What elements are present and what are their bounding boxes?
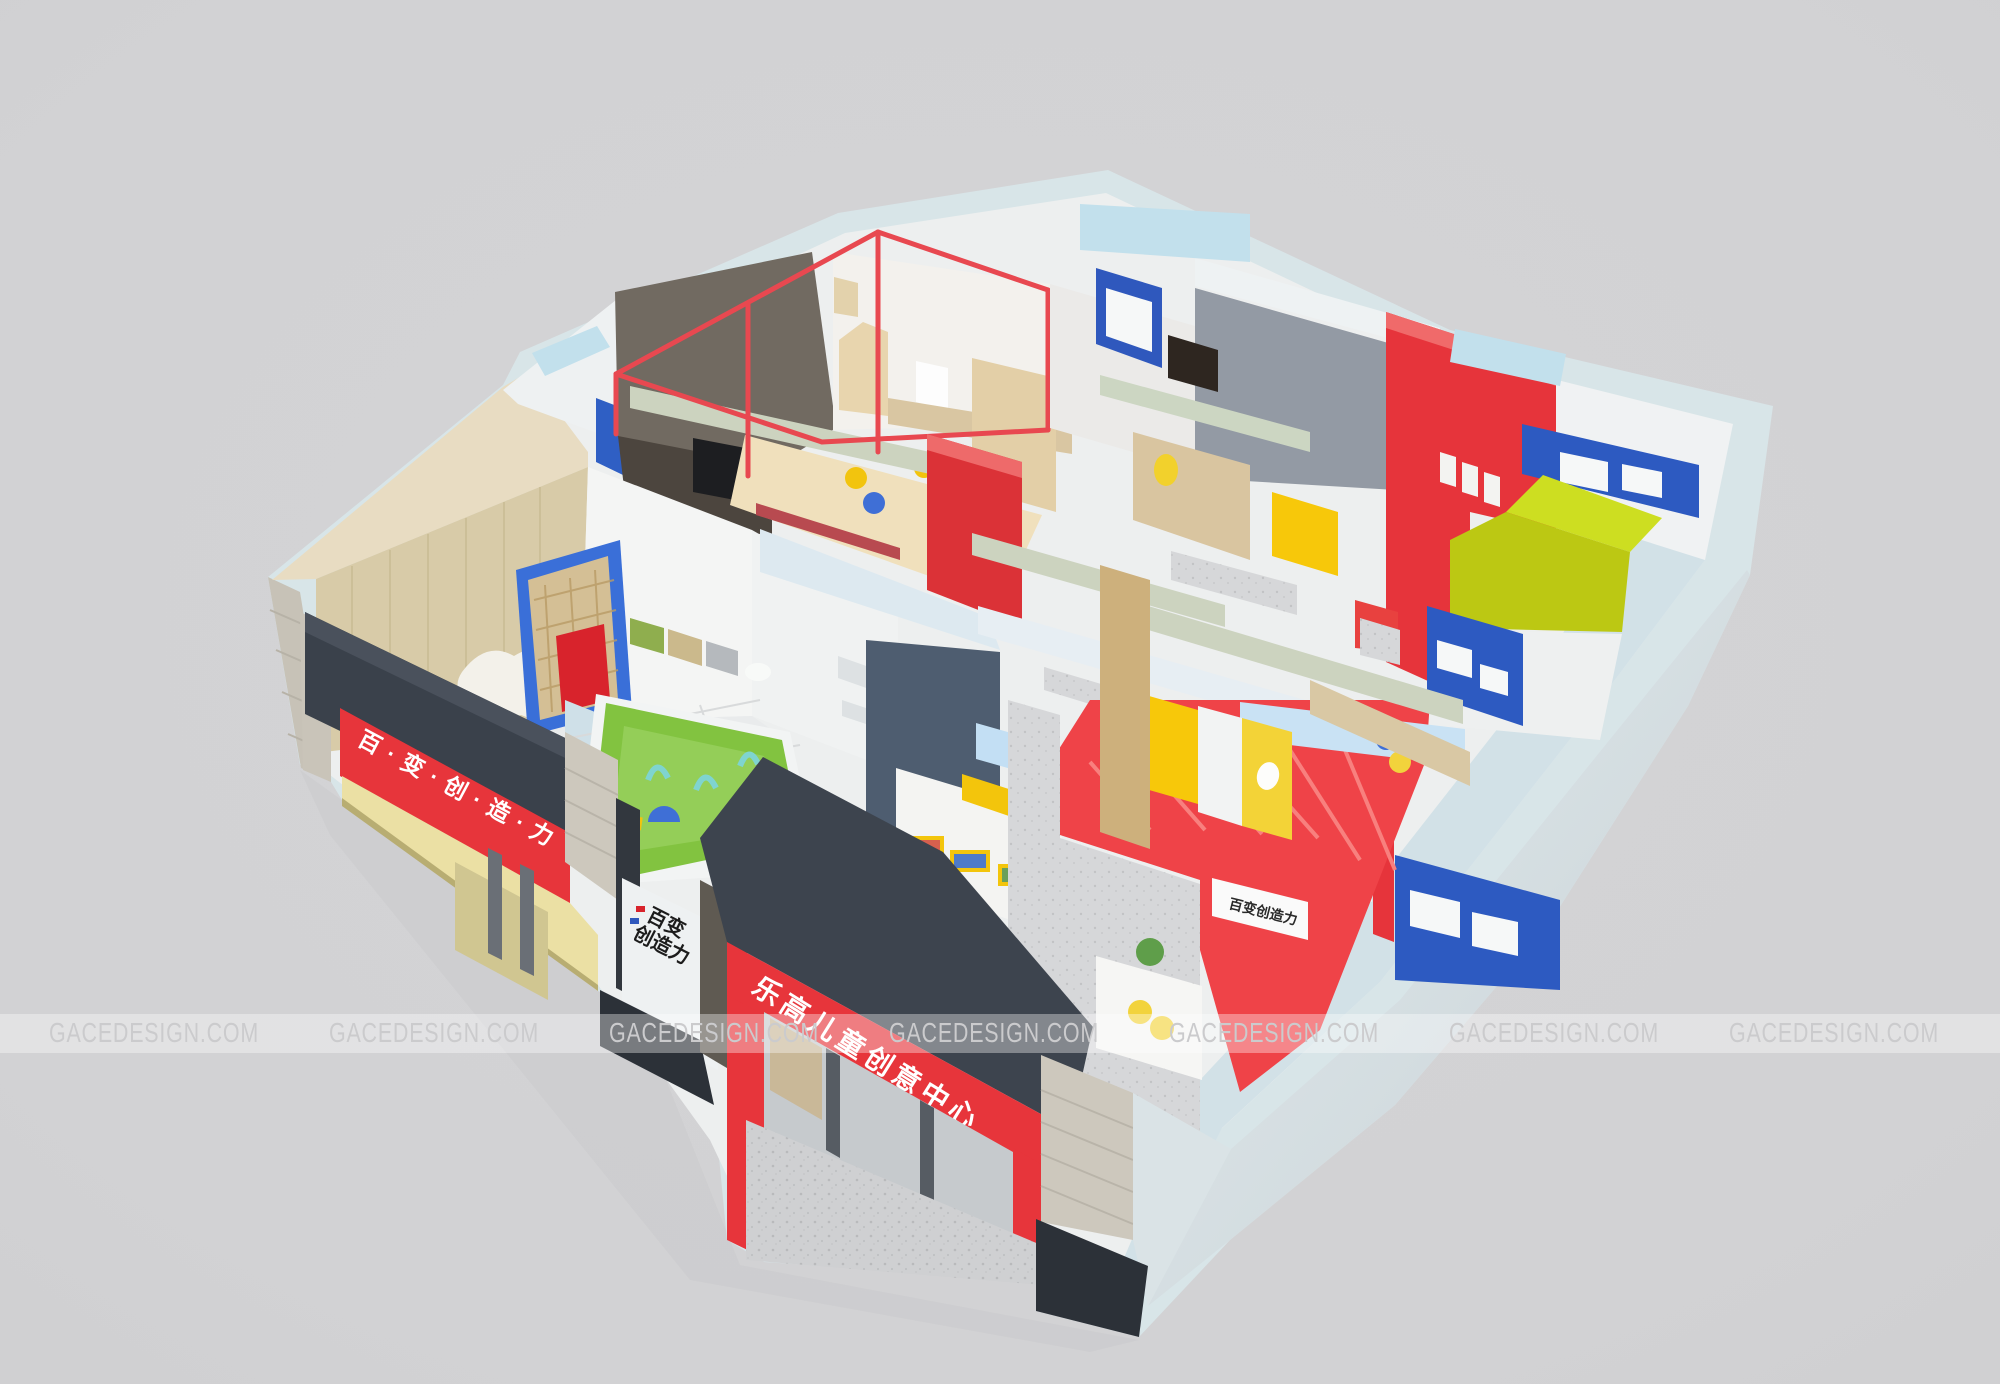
svg-text:GACEDESIGN.COM: GACEDESIGN.COM — [1729, 1017, 1939, 1048]
svg-text:GACEDESIGN.COM: GACEDESIGN.COM — [1449, 1017, 1659, 1048]
svg-text:GACEDESIGN.COM: GACEDESIGN.COM — [329, 1017, 539, 1048]
svg-text:GACEDESIGN.COM: GACEDESIGN.COM — [609, 1017, 819, 1048]
svg-text:GACEDESIGN.COM: GACEDESIGN.COM — [49, 1017, 259, 1048]
svg-text:GACEDESIGN.COM: GACEDESIGN.COM — [889, 1017, 1099, 1048]
svg-text:GACEDESIGN.COM: GACEDESIGN.COM — [1169, 1017, 1379, 1048]
